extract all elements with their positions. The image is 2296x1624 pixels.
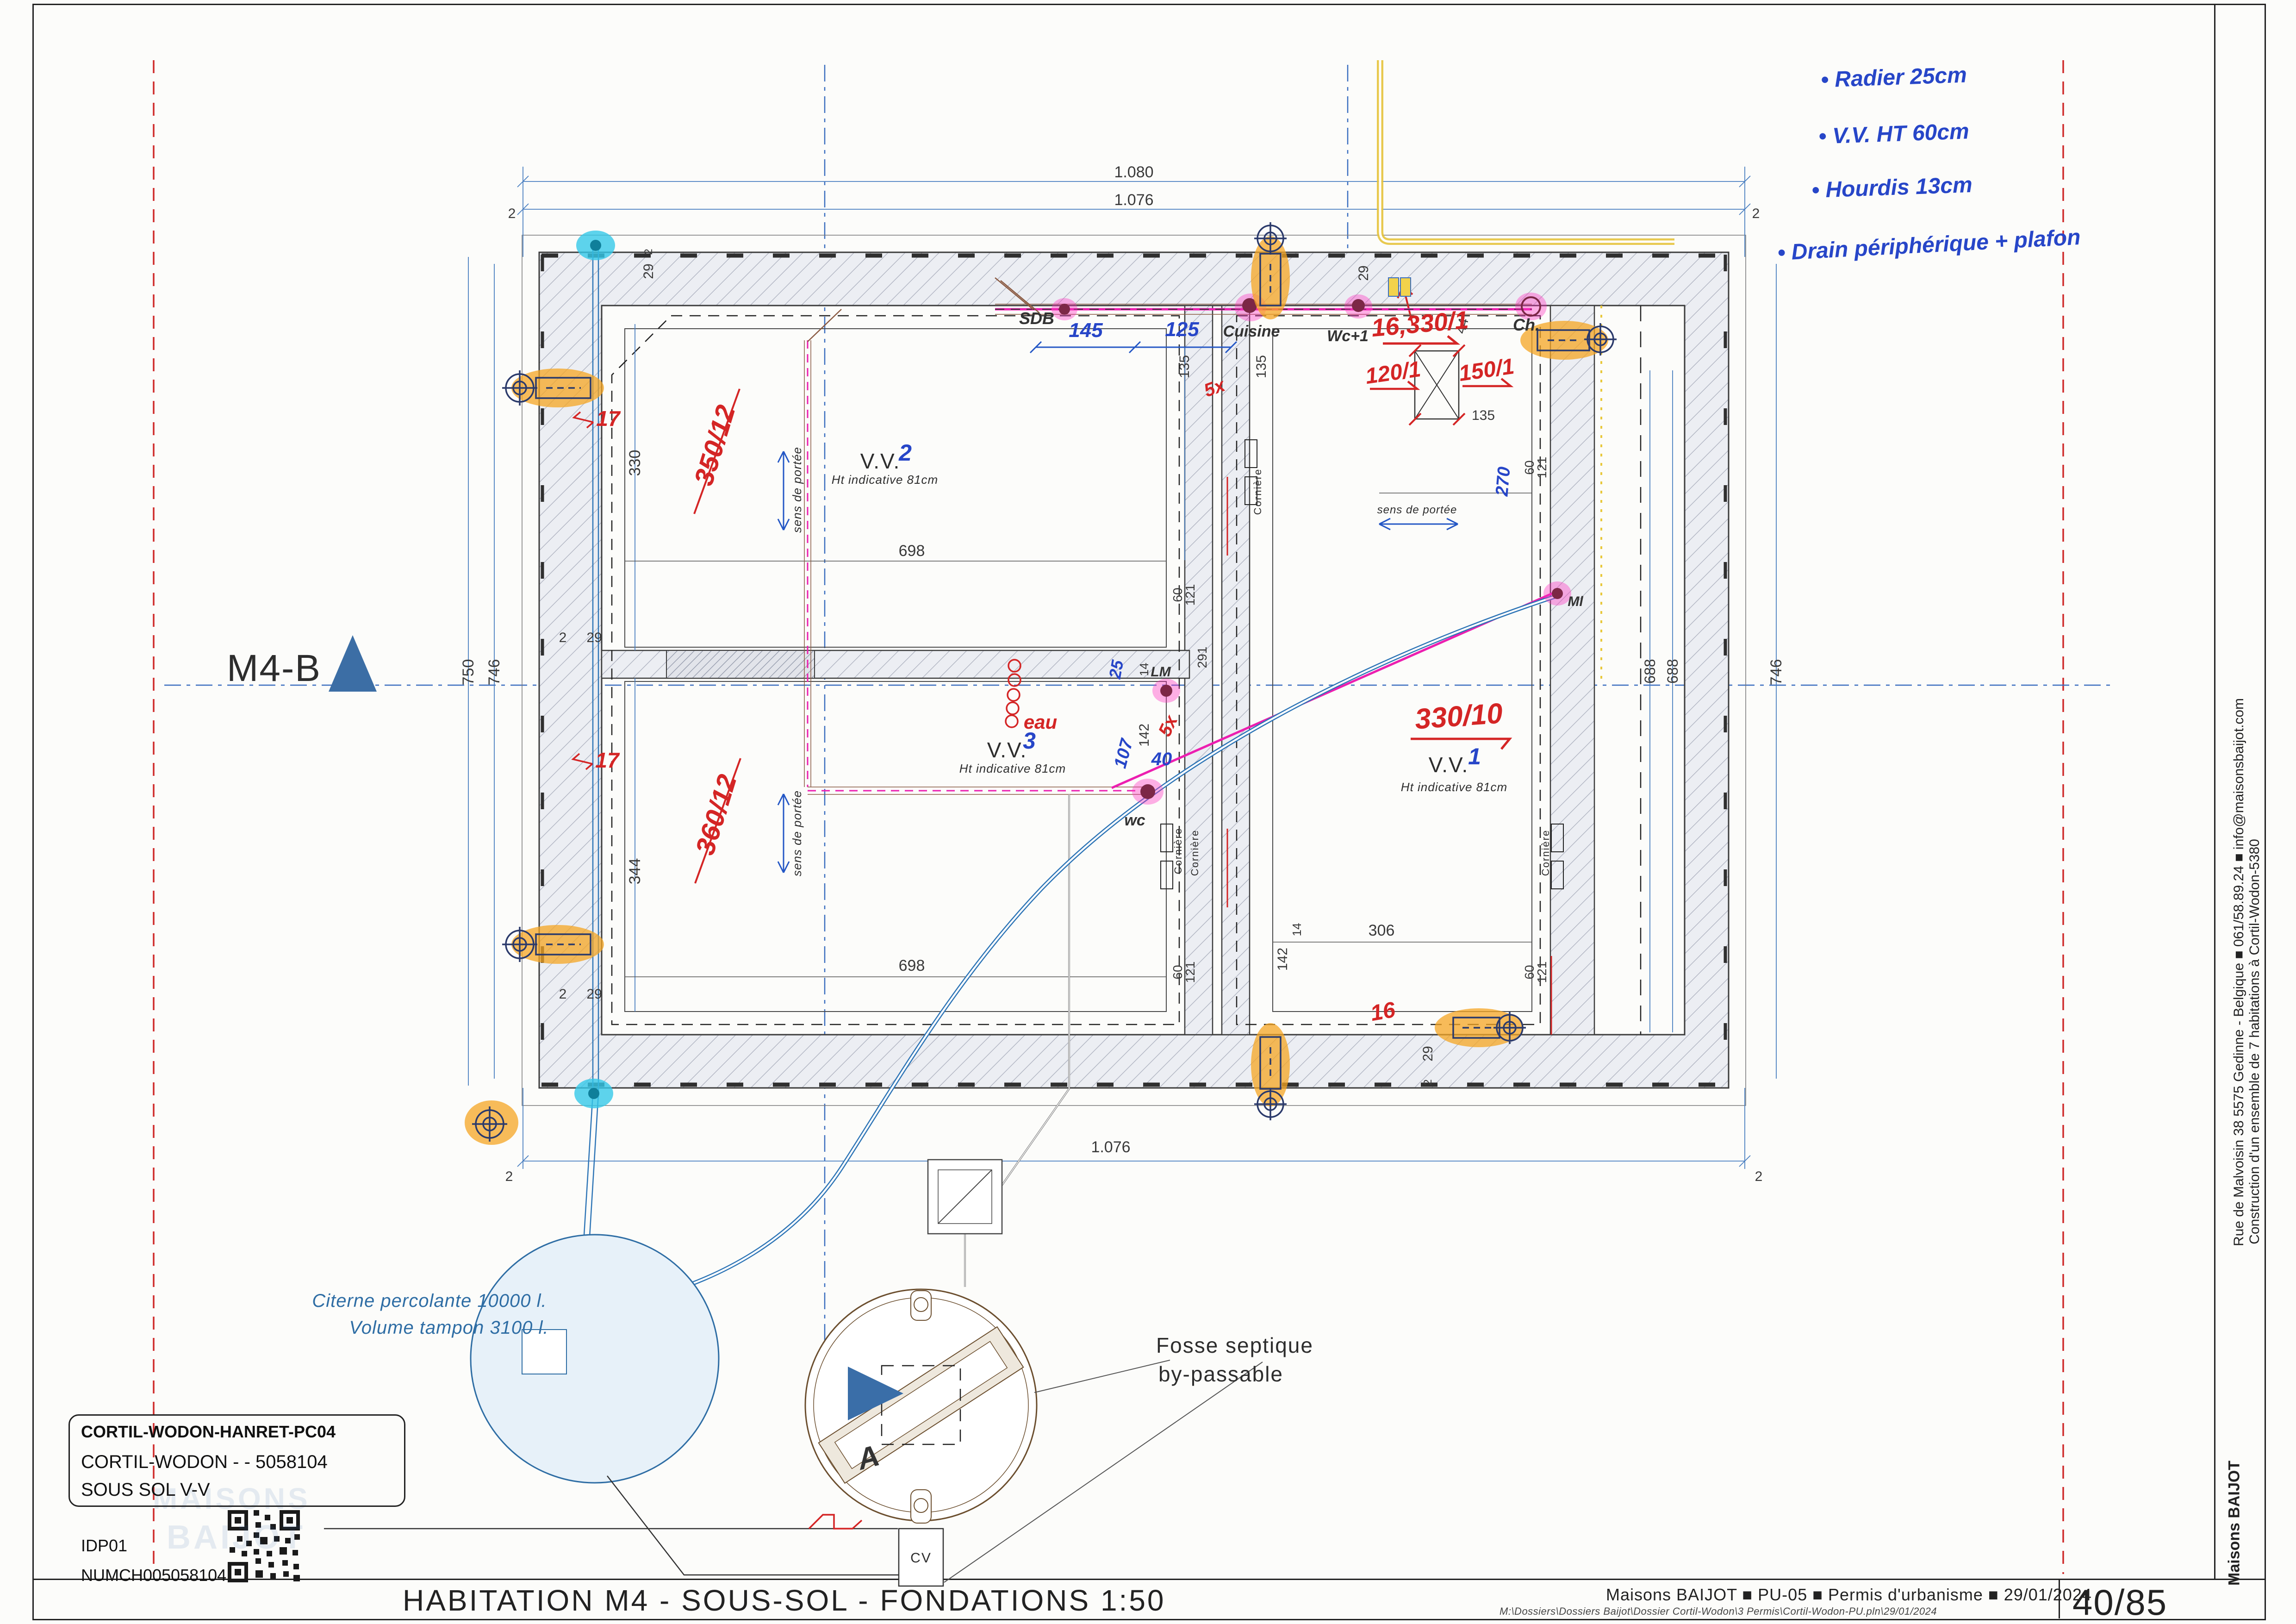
note-hourdis: • Hourdis 13cm (1811, 174, 1972, 202)
annotations-layer: 1.0801.076221.07622750746746330344698698… (0, 0, 2296, 1624)
annotation-59: Cornière (1541, 830, 1551, 876)
annotation-56: Cornière (1253, 468, 1263, 515)
annotation-50: sens de portée (791, 447, 803, 533)
annotation-57: Cornière (1173, 828, 1183, 874)
annotation-61: Volume tampon 3100 l. (349, 1318, 549, 1337)
annotation-39: 121 (1536, 962, 1549, 983)
annotation-86: 16,330/1 (1370, 307, 1469, 341)
annotation-6: 2 (1755, 1170, 1763, 1184)
note-drain: • Drain périphérique + plafon (1777, 226, 2081, 264)
side-project: Construction d'un ensemble de 7 habitati… (2247, 839, 2263, 1244)
annotation-90: 17 (595, 750, 619, 771)
fosse-septique-label: Fosse septique (1156, 1335, 1313, 1356)
title-block-view: SOUS SOL V-V (81, 1480, 210, 1500)
fixture-sdb: SDB (1019, 310, 1054, 327)
page-number: 40/85 (2072, 1581, 2167, 1624)
annotation-28: 2 (559, 631, 567, 645)
annotation-32: 29 (1421, 1046, 1435, 1061)
annotation-51: sens de portée (791, 790, 803, 876)
annotation-29: 29 (586, 631, 602, 645)
title-block-num: NUMCH005058104 (81, 1566, 226, 1585)
annotation-71: 125 (1165, 319, 1199, 340)
annotation-72: 25 (1107, 659, 1126, 680)
annotation-15: 688 (1643, 659, 1657, 683)
annotation-12: 698 (899, 543, 925, 559)
annotation-52: sens de portée (1377, 505, 1457, 516)
annotation-54: by-passable (1158, 1363, 1283, 1385)
eau-annotation: eau (1024, 712, 1057, 732)
annotation-48: Ht indicative 81cm (1401, 781, 1507, 793)
annotation-3: 2 (1752, 207, 1760, 221)
dim-left-750: 750 (460, 659, 476, 686)
room-vv2-label: V.V. (860, 450, 900, 472)
drawing-title: HABITATION M4 - SOUS-SOL - FONDATIONS 1:… (403, 1583, 1166, 1618)
dim-bottom-1076: 1.076 (1091, 1139, 1130, 1155)
dim-top-1076: 1.076 (1114, 192, 1153, 208)
annotation-30: 2 (559, 987, 567, 1001)
annotation-91: 5x (1201, 376, 1227, 400)
annotation-46: Ht indicative 81cm (959, 762, 1066, 775)
fixture-cuisine: Cuisine (1223, 324, 1280, 339)
annotation-41: 121 (1536, 457, 1549, 479)
annotation-87: 120/1 (1364, 358, 1422, 388)
fixture-wc: wc (1124, 812, 1145, 828)
annotation-34: 60 (1171, 587, 1184, 602)
annotation-36: 60 (1171, 965, 1184, 979)
annotation-25: 29 (642, 263, 656, 279)
beam-330-10: 330/10 (1414, 699, 1504, 734)
annotation-18: 135 (1178, 355, 1192, 378)
title-block-project-code: CORTIL-WODON-HANRET-PC04 (81, 1422, 336, 1442)
annotation-33: 2 (1423, 1079, 1434, 1085)
annotation-42: 291 (1196, 647, 1209, 668)
annotation-10: 330 (627, 450, 643, 476)
annotation-38: 60 (1523, 965, 1536, 979)
title-block-idp: IDP01 (81, 1536, 127, 1555)
title-block-site: CORTIL-WODON - - 5058104 (81, 1452, 328, 1473)
annotation-69: A (854, 1440, 882, 1474)
annotation-13: 698 (899, 958, 925, 974)
annotation-37: 121 (1184, 962, 1197, 983)
footer-file-path: M:\Dossiers\Dossiers Baijot\Dossier Cort… (1500, 1605, 1937, 1618)
annotation-16: 688 (1665, 659, 1680, 683)
citerne-label: Citerne percolante 10000 l. (312, 1292, 547, 1310)
annotation-44: Ht indicative 81cm (832, 474, 938, 486)
annotation-93: 16 (1369, 999, 1397, 1025)
plan-sheet: MAISONS BAIJOT 1.0801.076221.07622750746… (0, 0, 2296, 1624)
fixture-wc1: Wc+1 (1327, 328, 1369, 344)
fixture-ml: Ml (1568, 595, 1583, 609)
annotation-14: 306 (1369, 923, 1395, 938)
annotation-31: 29 (586, 987, 602, 1001)
side-company: Maisons BAIJOT (2226, 1461, 2244, 1586)
annotation-70: 145 (1069, 320, 1102, 341)
side-address: Rue de Malvoisin 38 5575 Gedinne - Belgi… (2231, 698, 2247, 1246)
annotation-5: 2 (505, 1170, 513, 1184)
cv-box-label: CV (910, 1551, 932, 1565)
annotation-89: 17 (596, 408, 620, 429)
annotation-88: 150/1 (1457, 356, 1516, 385)
annotation-17: 135 (1255, 355, 1269, 378)
annotation-27: 29 (1357, 265, 1371, 281)
note-radier: • Radier 25cm (1820, 64, 1967, 92)
beam-350-12: 350/12 (690, 402, 740, 489)
annotation-26: 2 (643, 249, 654, 255)
beam-360-12: 360/12 (691, 772, 741, 858)
annotation-21: 14 (1138, 663, 1150, 676)
room-vv1-label: V.V. (1429, 754, 1468, 775)
annotation-22: 142 (1138, 724, 1151, 747)
vv2-number: 2 (899, 441, 912, 464)
annotation-92: 5x (1155, 712, 1181, 739)
dim-left-746: 746 (486, 659, 502, 686)
annotation-74: 107 (1111, 737, 1136, 770)
annotation-58: Cornière (1190, 830, 1200, 876)
footer-info: Maisons BAIJOT ■ PU-05 ■ Permis d'urbani… (1606, 1585, 2092, 1605)
note-vv: • V.V. HT 60cm (1818, 120, 1970, 148)
annotation-75: 270 (1493, 466, 1513, 497)
fixture-lm: LM (1151, 665, 1170, 679)
annotation-35: 121 (1184, 584, 1197, 606)
section-marker-label: M4-B (227, 650, 321, 687)
vv1-number: 1 (1468, 745, 1481, 768)
annotation-11: 344 (627, 858, 643, 885)
room-vv3-label: V.V. (987, 739, 1027, 761)
annotation-23: 142 (1276, 948, 1290, 971)
annotation-40: 60 (1523, 460, 1536, 475)
annotation-73: 40 (1151, 750, 1172, 768)
annotation-19: 135 (1472, 409, 1495, 423)
annotation-24: 14 (1291, 923, 1303, 937)
annotation-2: 2 (508, 207, 516, 221)
fixture-ch: Ch. (1513, 317, 1540, 333)
dim-overall-1080: 1.080 (1114, 164, 1153, 180)
dim-right-746: 746 (1768, 659, 1784, 686)
